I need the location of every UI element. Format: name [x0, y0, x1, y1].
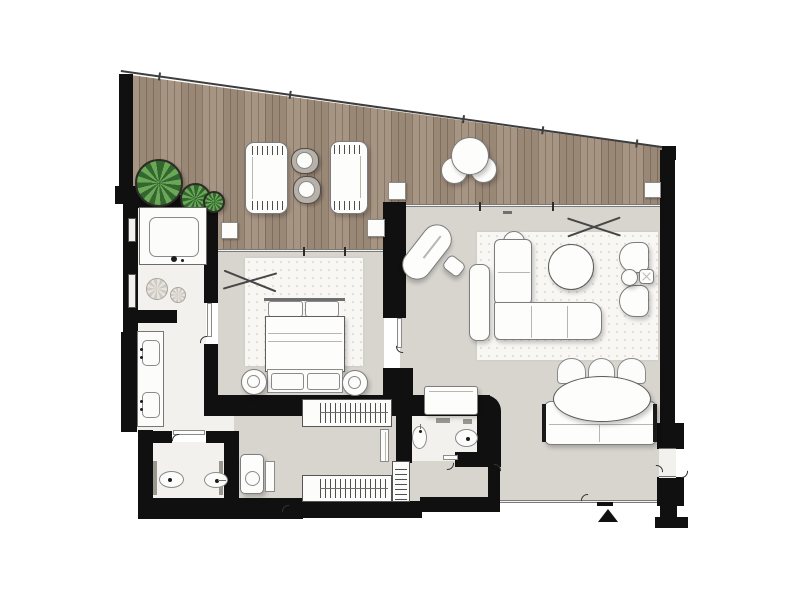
tap [140, 400, 143, 403]
duvet-fold [268, 341, 342, 342]
wall-hall-bottom [420, 497, 500, 512]
deck-column-1 [221, 222, 238, 239]
wall-right-pilaster [657, 423, 684, 449]
tap-spout [420, 424, 421, 429]
wc-floor [150, 442, 225, 500]
bench-cushion-right [307, 373, 340, 390]
wall-wc-top-left [138, 431, 172, 443]
lounge-side-table-upper [291, 148, 319, 174]
bistro-table [451, 137, 489, 175]
armchair-lower [619, 285, 649, 317]
wall-niche-upper [128, 218, 136, 242]
sliding-door-tick [479, 202, 481, 211]
closet-wardrobe [302, 475, 392, 502]
lounger-head-cushion [252, 146, 283, 155]
square-side-table [639, 269, 654, 284]
wall-divider-lower [383, 368, 413, 397]
lounger-foot-cushion [334, 201, 363, 210]
cushion-seam [567, 306, 568, 338]
seat-split [599, 425, 600, 442]
bed-foot-bench [267, 369, 343, 393]
bedroom-ceiling-fan [222, 267, 278, 295]
door-frame-line [659, 448, 676, 449]
mirror-line [385, 432, 386, 461]
side-cabinet [265, 461, 275, 492]
tap [140, 356, 143, 359]
banquette-end-right [653, 404, 657, 442]
table-top [296, 152, 313, 169]
shower-tray [149, 217, 199, 257]
sun-lounger-right [330, 141, 368, 214]
double-vanity [137, 331, 164, 427]
bidet-spout [218, 480, 226, 481]
tap [419, 430, 422, 433]
wall-vanity-left [121, 332, 137, 432]
wall-bedroom-bath-lower [204, 344, 218, 397]
living-ceiling-fan [566, 214, 622, 240]
entrance-door-sill [597, 502, 613, 506]
toilet-flush [168, 478, 172, 482]
deck-column-3 [388, 182, 406, 200]
entry-console [424, 386, 478, 415]
lounge-side-table-lower [293, 176, 321, 204]
banquette-end-left [542, 404, 546, 442]
bidet [204, 472, 228, 488]
sliding-door-tick [344, 247, 346, 256]
vanity-sink-lower [142, 392, 160, 418]
sliding-door-handle [503, 211, 512, 214]
round-side-table [621, 269, 638, 286]
door-frame-line [659, 476, 676, 477]
linen-shelf-unit [392, 461, 410, 502]
entry-glass-wall [497, 500, 660, 503]
washer-drum [245, 471, 260, 486]
sliding-door-tick [552, 202, 554, 211]
sliding-door-living [406, 204, 660, 207]
stool-top [348, 376, 361, 389]
sun-lounger-left [245, 142, 288, 214]
toilet-flush [466, 437, 470, 441]
stool-top [247, 375, 260, 388]
chaise-seam [423, 235, 442, 258]
sofa-vertical-section [494, 239, 532, 305]
bath-decor-1 [146, 278, 168, 300]
bath-decor-2 [170, 287, 186, 303]
bed-pillow-left [268, 301, 303, 317]
wall-powder-left [396, 416, 412, 463]
lounger-seam [360, 156, 361, 198]
wall-wc-right [224, 431, 239, 503]
wc-partition-left [153, 461, 157, 495]
wall-bottom-left [138, 498, 303, 519]
door-leaf-bathroom-bedroom [207, 303, 212, 337]
toilet [159, 471, 184, 488]
bedroom-wardrobe [302, 399, 392, 427]
floor-plan-canvas [0, 0, 800, 600]
shower-head [171, 256, 177, 262]
shower-control [181, 259, 184, 262]
wardrobe-rail [320, 412, 388, 413]
tap [140, 408, 143, 411]
bench-cushion-left [271, 373, 304, 390]
sliding-door-bedroom [218, 249, 383, 252]
wardrobe-rail [320, 488, 388, 489]
sofa-back-console [469, 264, 490, 341]
double-bed [265, 316, 345, 372]
door-leaf-powder [443, 455, 458, 460]
powder-toilet [455, 429, 478, 447]
duvet-fold [268, 333, 342, 334]
bed-pillow-right [305, 301, 339, 317]
wall-bottom-mid [300, 501, 422, 518]
cistern-mark-2 [463, 419, 472, 424]
tap [140, 348, 143, 351]
wall-bathroom-half [133, 310, 177, 323]
lounger-foot-cushion [252, 201, 283, 210]
mirror-panel [380, 429, 389, 462]
seat-line [549, 424, 653, 425]
cistern-mark-1 [436, 418, 450, 423]
table-top [298, 181, 315, 198]
sliding-door-tick [303, 247, 305, 256]
plant-large [135, 159, 183, 207]
shelf-stack [395, 465, 407, 500]
wall-right [660, 150, 675, 425]
console-line [429, 391, 473, 392]
lounger-seam [252, 157, 253, 199]
cushion-seam [498, 272, 530, 273]
round-stool-left [241, 369, 267, 395]
washing-machine [240, 454, 264, 494]
round-coffee-table [548, 244, 594, 290]
right-wall-door-opening [659, 448, 676, 478]
wall-niche-lower [128, 274, 136, 308]
cushion-seam [531, 306, 532, 338]
lounger-head-cushion [334, 145, 363, 154]
oval-dining-table [553, 376, 651, 422]
powder-sink [412, 426, 427, 449]
door-leaf-bedroom-hall [397, 318, 402, 348]
wall-left-upper [119, 74, 133, 188]
deck-column-4 [644, 182, 661, 198]
deck-column-2 [367, 219, 385, 237]
round-stool-right [342, 370, 368, 396]
sofa-horizontal-section [494, 302, 602, 340]
wall-right-block [657, 477, 684, 506]
hanging-clothes [320, 403, 388, 423]
walk-in-shower [139, 207, 207, 265]
entrance-arrow [598, 509, 618, 522]
wall-right-foot [655, 517, 688, 528]
vanity-sink-upper [142, 340, 160, 366]
